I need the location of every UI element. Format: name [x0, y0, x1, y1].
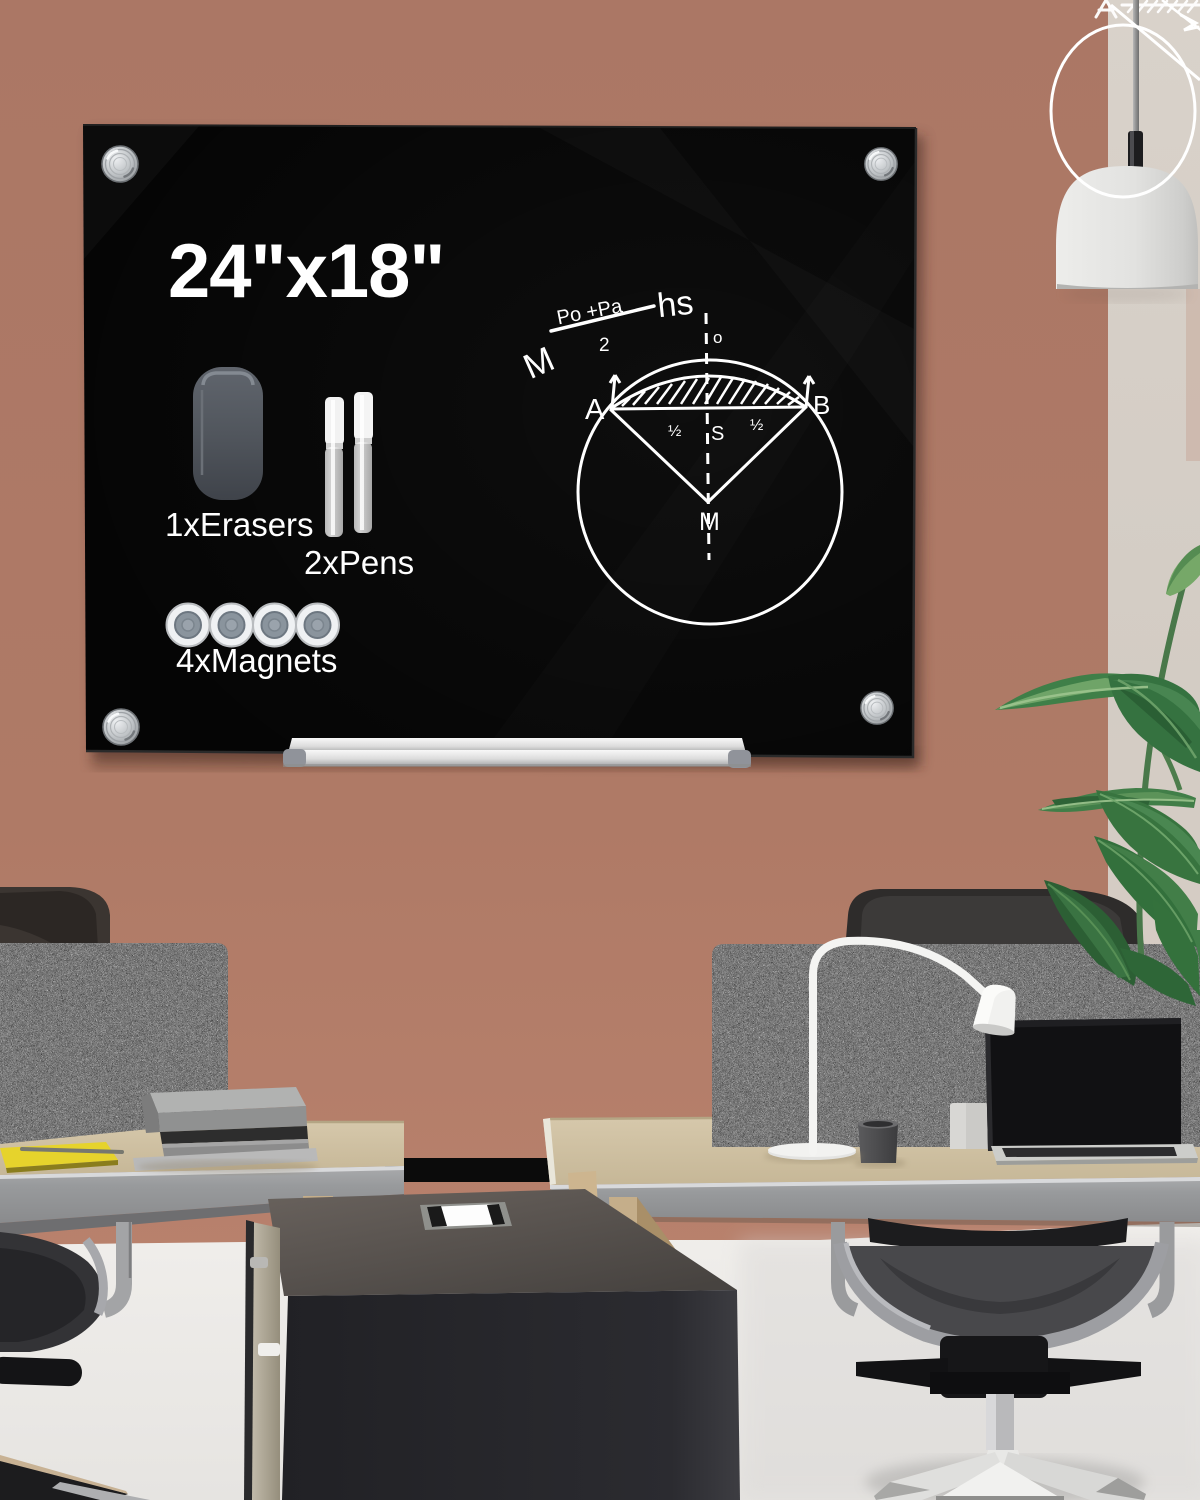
svg-text:2xPens: 2xPens	[304, 544, 414, 581]
svg-text:½: ½	[750, 417, 763, 434]
svg-text:2: 2	[599, 335, 610, 356]
svg-text:A: A	[585, 394, 605, 426]
svg-text:M: M	[699, 508, 720, 536]
svg-text:hs: hs	[655, 284, 695, 326]
svg-text:24"x18": 24"x18"	[168, 229, 444, 314]
svg-text:4xMagnets: 4xMagnets	[176, 642, 337, 679]
svg-text:½: ½	[668, 423, 681, 440]
svg-text:1xErasers: 1xErasers	[165, 506, 314, 543]
svg-text:o: o	[713, 328, 722, 347]
svg-text:S: S	[711, 423, 724, 445]
svg-text:B: B	[813, 390, 830, 420]
